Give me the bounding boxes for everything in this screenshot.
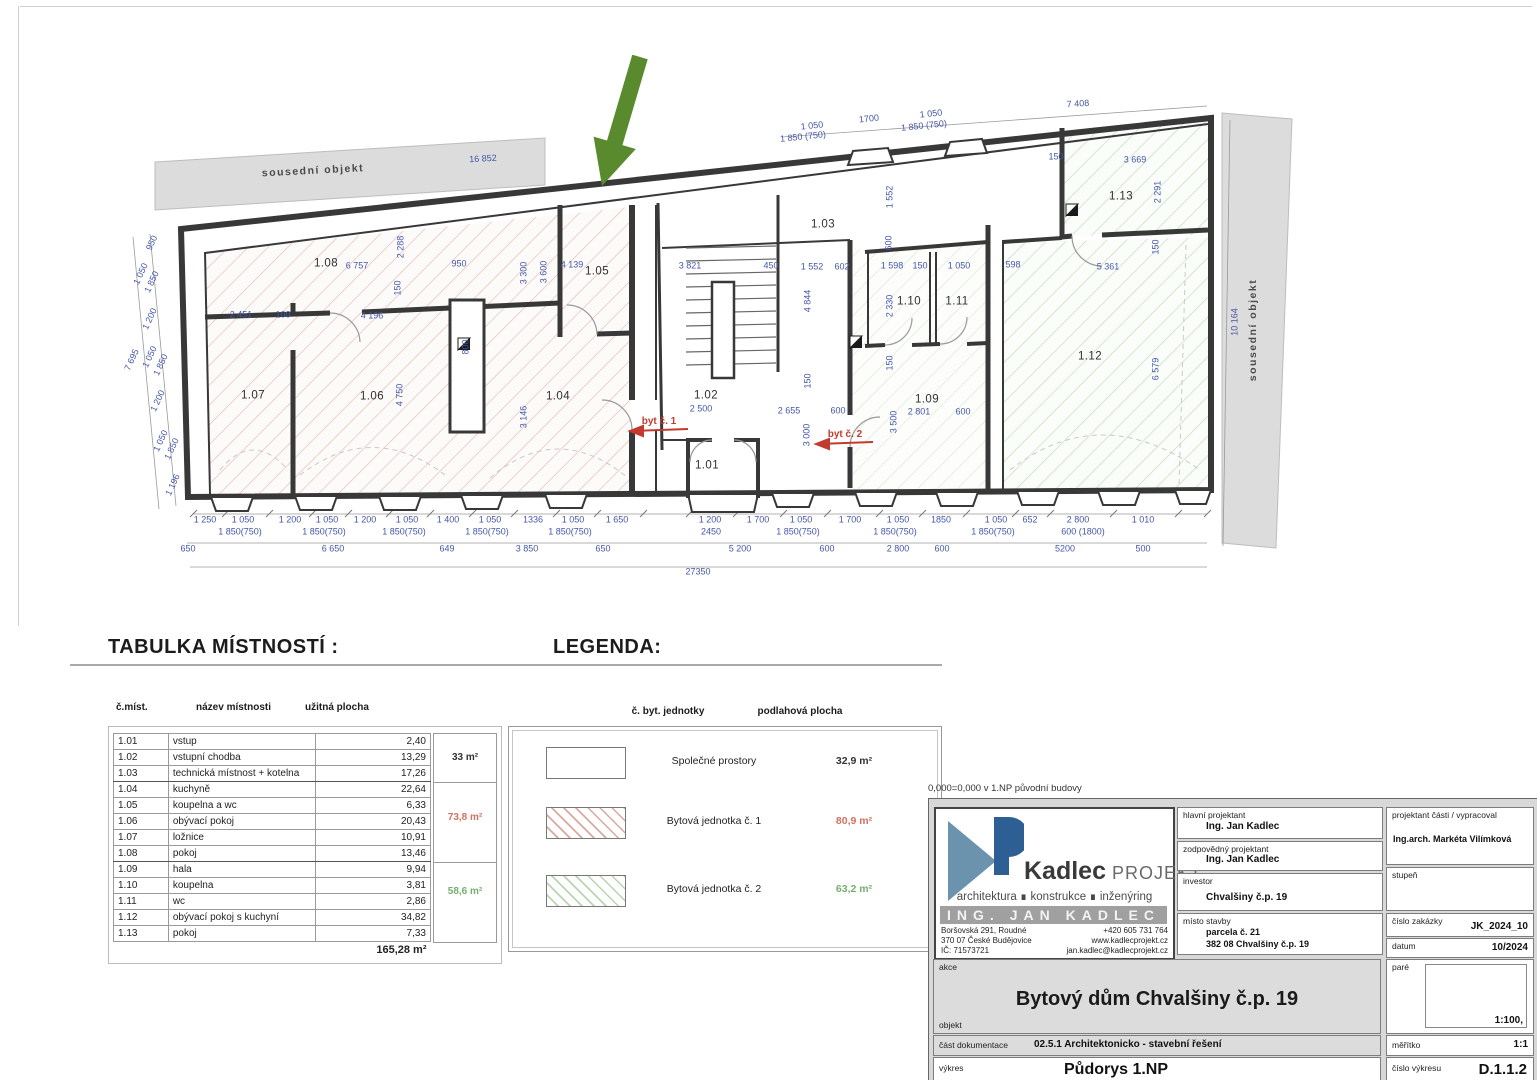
address-line: 370 07 České Budějovice	[941, 936, 1032, 945]
field-label: akce	[939, 962, 957, 972]
table-row: 1.13pokoj7,33	[114, 926, 431, 942]
dimension-label: 600	[955, 408, 970, 417]
dimension-label: 649	[439, 545, 454, 554]
dimension-label: 27350	[685, 568, 710, 577]
field-value: 382 08 Chvalšiny č.p. 19	[1206, 939, 1309, 949]
dimension-label: 1 700	[747, 516, 770, 525]
field-value: Ing. Jan Kadlec	[1206, 821, 1279, 832]
table-row: 1.08pokoj13,46	[114, 846, 431, 862]
floor-plan: sousední objekt16 852sousední objekt10 1…	[0, 0, 1537, 630]
dimension-label: 3 000	[803, 424, 812, 447]
dimension-label: 598	[1005, 261, 1020, 270]
dimension-label: 7 408	[1067, 99, 1090, 109]
room-table: 1.01vstup2,40 1.02vstupní chodba13,29 1.…	[108, 726, 502, 964]
unit-arrow-label: byt č. 1	[642, 417, 676, 427]
table-col-name: název místnosti	[196, 702, 271, 713]
dimension-label: 4 844	[804, 290, 813, 313]
cell-zodpovedny-projektant: zodpovědný projektant Ing. Jan Kadlec	[1177, 841, 1383, 871]
room-number-label: 1.10	[897, 296, 921, 308]
scale-main: 1:100,	[1495, 1015, 1523, 1026]
table-total: 165,28 m²	[315, 942, 430, 958]
table-total-row: 165,28 m²	[114, 942, 431, 958]
dimension-label: 600 (1800)	[1061, 528, 1105, 537]
field-value: 10/2024	[1492, 942, 1528, 953]
legend-heading: LEGENDA:	[553, 636, 661, 659]
legend-col-area: podlahová plocha	[740, 706, 860, 717]
dimension-label: 2 655	[778, 407, 801, 416]
legend-row-common: Společné prostory 32,9 m²	[509, 747, 941, 781]
table-row: 1.10koupelna3,81	[114, 878, 431, 894]
title-block: Kadlec PROJEKT architektura ∎ konstrukce…	[928, 798, 1537, 1080]
dimension-label: 1 250	[194, 516, 217, 525]
dimension-label: 4 139	[561, 261, 584, 270]
dimension-label: 950	[451, 260, 466, 269]
dimension-label: 1 050	[232, 516, 255, 525]
floor-plan-labels: sousední objekt16 852sousední objekt10 1…	[0, 0, 1537, 630]
room-number-label: 1.05	[585, 266, 609, 278]
field-label: zodpovědný projektant	[1183, 844, 1269, 854]
dimension-label: 4 196	[361, 312, 384, 321]
dimension-label: sousední objekt	[1248, 279, 1259, 381]
dimension-label: 1 400	[437, 516, 460, 525]
dimension-label: 1700	[859, 113, 880, 124]
room-number-label: 1.08	[314, 258, 338, 270]
room-number-label: 1.06	[360, 391, 384, 403]
unit-arrow-label: byt č. 2	[828, 430, 862, 440]
heading-rule	[70, 664, 942, 666]
cell-cislo-vykresu: číslo výkresu D.1.1.2	[1386, 1057, 1534, 1080]
dimension-label: 150	[804, 373, 813, 388]
dimension-label: 1 650	[606, 516, 629, 525]
room-number-label: 1.03	[811, 219, 835, 231]
dimension-label: sousední objekt	[262, 163, 365, 179]
dimension-label: 2 291	[1154, 181, 1163, 204]
field-value: Ing.arch. Markéta Vilímková	[1393, 834, 1511, 844]
dimension-label: 652	[1022, 516, 1037, 525]
cell-investor: investor Chvalšiny č.p. 19	[1177, 873, 1383, 911]
dimension-label: 1 552	[801, 263, 824, 272]
dimension-label: 1 200	[699, 516, 722, 525]
legend-label: Bytová jednotka č. 2	[629, 883, 799, 895]
room-table-grid: 1.01vstup2,40 1.02vstupní chodba13,29 1.…	[113, 733, 431, 957]
dimension-label: 1 850(750)	[465, 528, 509, 537]
dimension-label: 1 850 (750)	[780, 130, 827, 144]
dimension-label: 10 164	[1231, 308, 1240, 336]
field-label: měřítko	[1392, 1040, 1420, 1050]
field-label: investor	[1183, 876, 1213, 886]
dimension-label: 3 669	[1124, 156, 1147, 165]
dimension-label: 1 050	[948, 262, 971, 271]
dimension-label: 2 500	[690, 405, 713, 414]
group-area-unit1: 73,8 m²	[434, 812, 496, 823]
company-logo-cell: Kadlec PROJEKT architektura ∎ konstrukce…	[934, 807, 1175, 960]
pare-box: 1:100,	[1425, 964, 1527, 1028]
legend-label: Bytová jednotka č. 1	[629, 815, 799, 827]
dimension-label: 2 800	[887, 545, 910, 554]
dimension-label: 450	[763, 262, 778, 271]
dimension-label: 1 850(750)	[971, 528, 1015, 537]
dimension-label: 2 451	[230, 311, 253, 320]
legend-col-unit: č. byt. jednotky	[608, 706, 728, 717]
dimension-label: 2 801	[908, 408, 931, 417]
dimension-label: 4 750	[396, 384, 405, 407]
group-area-unit2: 58,6 m²	[434, 886, 496, 897]
dimension-label: 1 200	[149, 389, 167, 413]
room-number-label: 1.11	[945, 296, 968, 308]
cell-cislo-zakazky: číslo zakázky JK_2024_10	[1386, 913, 1534, 937]
dimension-label: 2 288	[397, 236, 406, 259]
table-row: 1.12obývací pokoj s kuchyní34,82	[114, 910, 431, 926]
dimension-label: 100	[275, 311, 290, 320]
cell-datum: datum 10/2024	[1386, 938, 1534, 958]
field-label: projektant části / vypracoval	[1392, 810, 1497, 820]
cell-hlavni-projektant: hlavní projektant Ing. Jan Kadlec	[1177, 807, 1383, 839]
dimension-label: 3 821	[679, 262, 702, 271]
field-label: datum	[1392, 941, 1416, 951]
table-row: 1.07ložnice10,91	[114, 830, 431, 846]
dimension-label: 600	[885, 235, 894, 250]
table-col-area: užitná plocha	[305, 702, 369, 713]
room-number-label: 1.02	[694, 390, 718, 402]
legend-area: 63,2 m²	[809, 883, 899, 895]
cell-projektant-casti: projektant části / vypracoval Ing.arch. …	[1386, 807, 1534, 865]
field-value: Ing. Jan Kadlec	[1206, 854, 1279, 865]
dimension-label: 1 050	[396, 516, 419, 525]
address-line: Boršovská 291, Roudné	[941, 926, 1026, 935]
logo-contacts: Boršovská 291, Roudné+420 605 731 764 37…	[941, 926, 1168, 955]
dimension-label: 602	[834, 263, 849, 272]
dimension-label: 150	[1048, 153, 1063, 162]
dimension-label: 1 200	[354, 516, 377, 525]
field-label: výkres	[939, 1063, 964, 1073]
field-value: Chvalšiny č.p. 19	[1206, 892, 1287, 903]
swatch-common	[546, 747, 626, 779]
table-row: 1.06obývací pokoj20,43	[114, 814, 431, 830]
table-group-column: 33 m² 73,8 m² 58,6 m²	[433, 733, 497, 943]
table-row: 1.04kuchyně22,64	[114, 782, 431, 798]
dimension-label: 6 757	[346, 262, 369, 271]
table-row: 1.09hala9,94	[114, 862, 431, 878]
swatch-unit1-hatch	[546, 807, 626, 839]
logo-name: Kadlec	[1024, 857, 1106, 886]
dimension-label: 1 850(750)	[873, 528, 917, 537]
field-label: hlavní projektant	[1183, 810, 1245, 820]
group-area-common: 33 m²	[434, 752, 496, 763]
cell-meritko: měřítko 1:1	[1386, 1035, 1534, 1056]
dimension-label: 1 196	[164, 473, 182, 497]
dimension-label: 150	[886, 355, 895, 370]
legend: Společné prostory 32,9 m² Bytová jednotk…	[508, 726, 942, 952]
field-value: 02.5.1 Architektonicko - stavební řešení	[1034, 1039, 1221, 1050]
dimension-label: 650	[595, 545, 610, 554]
room-number-label: 1.04	[546, 391, 570, 403]
cell-misto-stavby: místo stavby parcela č. 21 382 08 Chvalš…	[1177, 913, 1383, 955]
dimension-label: 1 050	[479, 516, 502, 525]
dimension-label: 5 361	[1097, 263, 1120, 272]
table-heading: TABULKA MÍSTNOSTÍ :	[108, 636, 339, 659]
dimension-label: 1 050	[316, 516, 339, 525]
dimension-label: 1850	[931, 516, 951, 525]
project-title: Bytový dům Chvalšiny č.p. 19	[934, 988, 1380, 1011]
dimension-label: 950	[145, 234, 160, 251]
scale-value: 1:1	[1514, 1039, 1528, 1050]
legend-row-unit2: Bytová jednotka č. 2 63,2 m²	[509, 875, 941, 909]
dimension-label: 7 695	[123, 348, 141, 372]
dimension-label: 1 850(750)	[776, 528, 820, 537]
table-row: 1.03technická místnost + kotelna17,26	[114, 766, 431, 782]
table-col-id: č.míst.	[116, 702, 148, 713]
dimension-label: 1 850(750)	[548, 528, 592, 537]
dimension-label: 2 800	[1067, 516, 1090, 525]
dimension-label: 650	[180, 545, 195, 554]
dimension-label: 6 650	[322, 545, 345, 554]
dimension-label: 150	[1152, 239, 1161, 254]
field-value: JK_2024_10	[1471, 921, 1528, 932]
dimension-label: 3 500	[890, 411, 899, 434]
email: jan.kadlec@kadlecprojekt.cz	[1066, 946, 1168, 956]
field-label: paré	[1392, 962, 1409, 972]
table-row: 1.11wc2,86	[114, 894, 431, 910]
dimension-label: 600	[934, 545, 949, 554]
dimension-label: 2 330	[886, 295, 895, 318]
dimension-label: 1 050	[562, 516, 585, 525]
cell-vykres: výkres Půdorys 1.NP	[933, 1057, 1381, 1080]
swatch-unit2-hatch	[546, 875, 626, 907]
table-row: 1.01vstup2,40	[114, 734, 431, 750]
dimension-label: 1 050	[887, 516, 910, 525]
dimension-label: 5 200	[729, 545, 752, 554]
dimension-label: 16 852	[469, 154, 497, 164]
dimension-label: 1 552	[886, 186, 895, 209]
room-number-label: 1.07	[241, 390, 265, 402]
dimension-label: 6 579	[1152, 358, 1161, 381]
dimension-label: 2450	[701, 528, 721, 537]
legend-label: Společné prostory	[629, 755, 799, 767]
dimension-label: 1 200	[141, 307, 159, 331]
cell-pare: paré 1:100,	[1386, 959, 1534, 1034]
dimension-label: 3 300	[520, 262, 529, 285]
website: www.kadlecprojekt.cz	[1092, 936, 1168, 946]
dimension-label: 600	[830, 407, 845, 416]
cell-stupen: stupeň	[1386, 867, 1534, 911]
logo-tagline: architektura ∎ konstrukce ∎ inženýring	[942, 889, 1167, 903]
elevation-note: 0,000=0,000 v 1.NP původní budovy	[928, 783, 1082, 794]
logo-banner: ING. JAN KADLEC	[940, 906, 1167, 924]
cell-akce: akce Bytový dům Chvalšiny č.p. 19 objekt	[933, 959, 1381, 1034]
dimension-label: 150	[912, 262, 927, 271]
field-value: parcela č. 21	[1206, 927, 1260, 937]
drawing-name: Půdorys 1.NP	[1064, 1061, 1168, 1079]
field-label: stupeň	[1392, 870, 1418, 880]
field-label: část dokumentace	[939, 1040, 1008, 1050]
dimension-label: 500	[1135, 545, 1150, 554]
dimension-label: 1 700	[839, 516, 862, 525]
drawing-number: D.1.1.2	[1479, 1061, 1527, 1078]
dimension-label: 1 850(750)	[218, 528, 262, 537]
field-label: číslo zakázky	[1392, 916, 1443, 926]
phone: +420 605 731 764	[1103, 926, 1168, 936]
legend-row-unit1: Bytová jednotka č. 1 80,9 m²	[509, 807, 941, 841]
legend-area: 32,9 m²	[809, 755, 899, 767]
company-id: IČ: 71573721	[941, 946, 989, 955]
dimension-label: 3 600	[540, 261, 549, 284]
dimension-label: 1 050	[790, 516, 813, 525]
room-number-label: 1.12	[1078, 351, 1102, 363]
table-row: 1.05koupelna a wc6,33	[114, 798, 431, 814]
dimension-label: 3 146	[520, 406, 529, 429]
dimension-label: 800	[462, 339, 471, 354]
legend-area: 80,9 m²	[809, 815, 899, 827]
field-label: objekt	[939, 1020, 962, 1030]
field-label: místo stavby	[1183, 916, 1231, 926]
dimension-label: 1 050	[985, 516, 1008, 525]
dimension-label: 1 010	[1132, 516, 1155, 525]
dimension-label: 600	[819, 545, 834, 554]
room-number-label: 1.13	[1109, 191, 1133, 203]
dimension-label: 1 850(750)	[302, 528, 346, 537]
dimension-label: 1 598	[881, 262, 904, 271]
dimension-label: 1 850(750)	[382, 528, 426, 537]
room-number-label: 1.01	[695, 460, 719, 472]
room-number-label: 1.09	[915, 394, 939, 406]
dimension-label: 1336	[523, 516, 543, 525]
cell-cast-dokumentace: část dokumentace 02.5.1 Architektonicko …	[933, 1035, 1381, 1056]
dimension-label: 1 200	[279, 516, 302, 525]
dimension-label: 5200	[1055, 545, 1075, 554]
dimension-label: 150	[394, 280, 403, 295]
dimension-label: 1 850 (750)	[901, 119, 948, 133]
dimension-label: 3 850	[516, 545, 539, 554]
field-label: číslo výkresu	[1392, 1063, 1441, 1073]
table-row: 1.02vstupní chodba13,29	[114, 750, 431, 766]
